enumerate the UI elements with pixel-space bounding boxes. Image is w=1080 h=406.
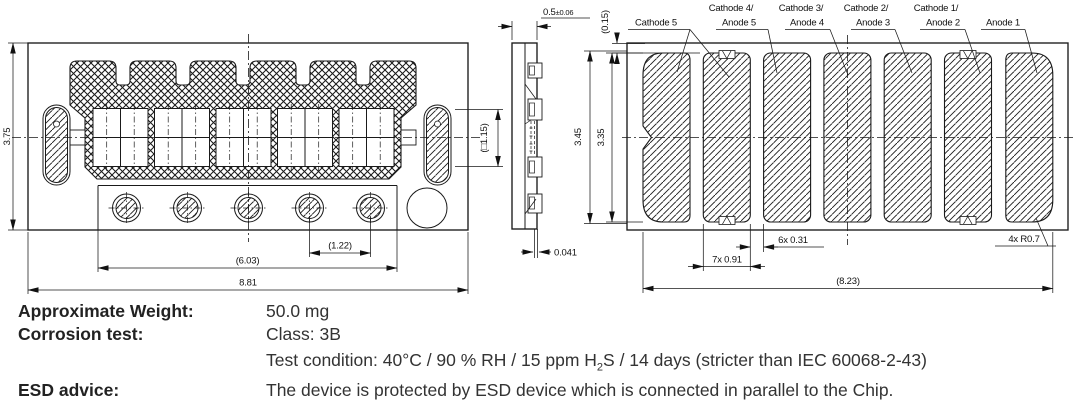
esd-label: ESD advice: bbox=[18, 380, 119, 401]
pin-label-anode3: Anode 3 bbox=[856, 18, 890, 29]
index-hole bbox=[435, 121, 441, 127]
pin-label-cathode5: Cathode 5 bbox=[635, 18, 677, 29]
front-view: 3.75 (1.22) (6.03) 8.81 (□1.15) bbox=[2, 34, 503, 294]
dim-pad-gap: 6x 0.31 bbox=[778, 235, 808, 246]
dim-hole-span: (6.03) bbox=[236, 256, 260, 267]
dim-top-gap: (0.15) bbox=[600, 10, 611, 34]
dim-standoff: 0.041 bbox=[554, 248, 577, 259]
pin-label-anode1: Anode 1 bbox=[986, 18, 1020, 29]
plain-hole bbox=[407, 188, 447, 228]
pin-label-cathode4: Cathode 4/ bbox=[709, 3, 754, 14]
datasheet-package-drawing: 3.75 (1.22) (6.03) 8.81 (□1.15) bbox=[0, 0, 1080, 406]
pin-label-cathode2: Cathode 2/ bbox=[844, 3, 889, 14]
pin-label-cathode1: Cathode 1/ bbox=[914, 3, 959, 14]
test-condition-post: S / 14 days (stricter than IEC 60068-2-4… bbox=[603, 350, 927, 370]
dim-front-height: 3.75 bbox=[2, 128, 13, 146]
dim-pad-width: 7x 0.91 bbox=[712, 255, 742, 266]
technical-drawing: 3.75 (1.22) (6.03) 8.81 (□1.15) bbox=[0, 0, 1080, 298]
side-pad-left bbox=[43, 105, 70, 185]
dim-thickness: 0.5±0.06 bbox=[543, 7, 573, 18]
dim-hole-pitch: (1.22) bbox=[328, 241, 352, 252]
dim-front-width: 8.81 bbox=[239, 278, 257, 289]
test-condition: Test condition: 40°C / 90 % RH / 15 ppm … bbox=[266, 350, 927, 374]
weight-value: 50.0 mg bbox=[266, 301, 329, 322]
pin-label-cathode3: Cathode 3/ bbox=[779, 3, 824, 14]
side-lead-tabs bbox=[525, 63, 542, 214]
esd-value: The device is protected by ESD device wh… bbox=[266, 380, 893, 401]
dim-window-size: (□1.15) bbox=[479, 123, 490, 152]
weight-label: Approximate Weight: bbox=[18, 301, 194, 322]
dim-pad-height: 3.35 bbox=[596, 129, 607, 147]
pin-label-anode2: Anode 2 bbox=[926, 18, 960, 29]
pad-cathode5 bbox=[643, 53, 690, 222]
bottom-holes bbox=[109, 188, 448, 228]
dim-corner-radius: 4x R0.7 bbox=[1008, 234, 1039, 245]
dim-pad-span: (8.23) bbox=[836, 276, 860, 287]
bottom-pad-view: Cathode 5 Cathode 4/ Anode 5 Cathode 3/ … bbox=[573, 3, 1074, 293]
pin-label-anode5: Anode 5 bbox=[722, 18, 756, 29]
pin-label-anode4: Anode 4 bbox=[790, 18, 824, 29]
test-condition-pre: Test condition: 40°C / 90 % RH / 15 ppm … bbox=[266, 350, 597, 370]
dim-outer-height: 3.45 bbox=[573, 128, 584, 146]
index-hole bbox=[54, 121, 60, 127]
side-pad-right bbox=[424, 105, 451, 185]
pad-anode1 bbox=[1006, 53, 1053, 222]
corrosion-class: Class: 3B bbox=[266, 324, 341, 345]
corrosion-label: Corrosion test: bbox=[18, 324, 143, 345]
